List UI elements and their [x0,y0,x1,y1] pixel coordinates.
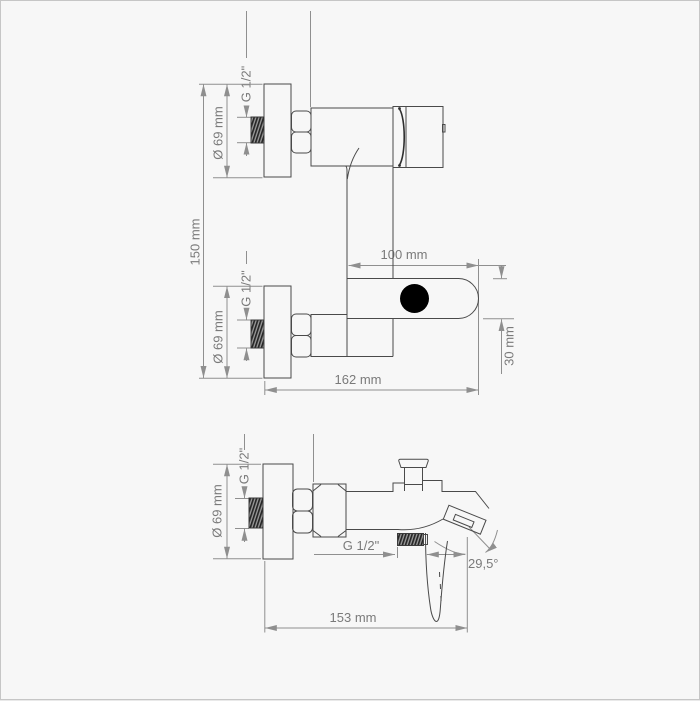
dim-label-lower-plate-diameter: Ø 69 mm [211,310,226,363]
spout-nozzle [443,505,486,534]
dim-label-lower-thread: G 1/2" [239,270,254,307]
lever-handle-plan [406,107,445,168]
lever-handle-side [426,533,448,622]
connector-cylinder [313,484,346,537]
spout-plan [347,278,479,318]
plan-dimensions: G 1/2" Ø 69 mm 150 mm Ø 69 mm G 1/2" [188,11,517,395]
dim-label-overall-depth: 162 mm [335,372,382,387]
diverter-knob [399,459,429,491]
technical-drawing-canvas: G 1/2" Ø 69 mm 150 mm Ø 69 mm G 1/2" [0,0,700,700]
plan-product [251,84,479,378]
dim-label-upper-plate-diameter: Ø 69 mm [211,106,226,159]
cartridge-cap [393,107,406,168]
hex-nut-upper [292,111,312,153]
thread-fitting-side [249,498,263,528]
wall-plate-upper [264,84,291,177]
mixer-drawing-svg: G 1/2" Ø 69 mm 150 mm Ø 69 mm G 1/2" [1,1,700,701]
down-tube-lower [347,319,393,357]
wall-plate-side [263,464,293,559]
shower-outlet-thread [398,534,428,546]
dim-label-wall-thread: G 1/2" [237,447,252,484]
plan-view: G 1/2" Ø 69 mm 150 mm Ø 69 mm G 1/2" [188,11,517,395]
dim-label-spout-height: 30 mm [502,326,517,366]
side-dimensions: G 1/2" Ø 69 mm G 1/2" 29,5° 153 [210,434,499,633]
side-view: G 1/2" Ø 69 mm G 1/2" 29,5° 153 [210,434,499,633]
thread-fitting-upper [251,117,264,143]
dim-label-plate-diameter-side: Ø 69 mm [210,484,225,537]
dim-label-outlet-thread: G 1/2" [343,538,380,553]
wall-plate-lower [264,286,291,378]
angle-arc-left [435,542,466,555]
diverter-circle-inner [404,288,426,310]
connector-lower [311,315,347,357]
dim-label-overall-length: 153 mm [330,610,377,625]
dim-label-spout-angle: 29,5° [468,556,499,571]
hex-nut-lower [292,314,312,357]
mixer-body-tube [311,108,393,166]
dim-label-connection-distance: 150 mm [188,219,203,266]
hex-nut-side [293,489,313,533]
thread-fitting-lower [251,320,264,348]
angle-arc-right [486,530,498,553]
dim-label-spout-length: 100 mm [381,247,428,262]
